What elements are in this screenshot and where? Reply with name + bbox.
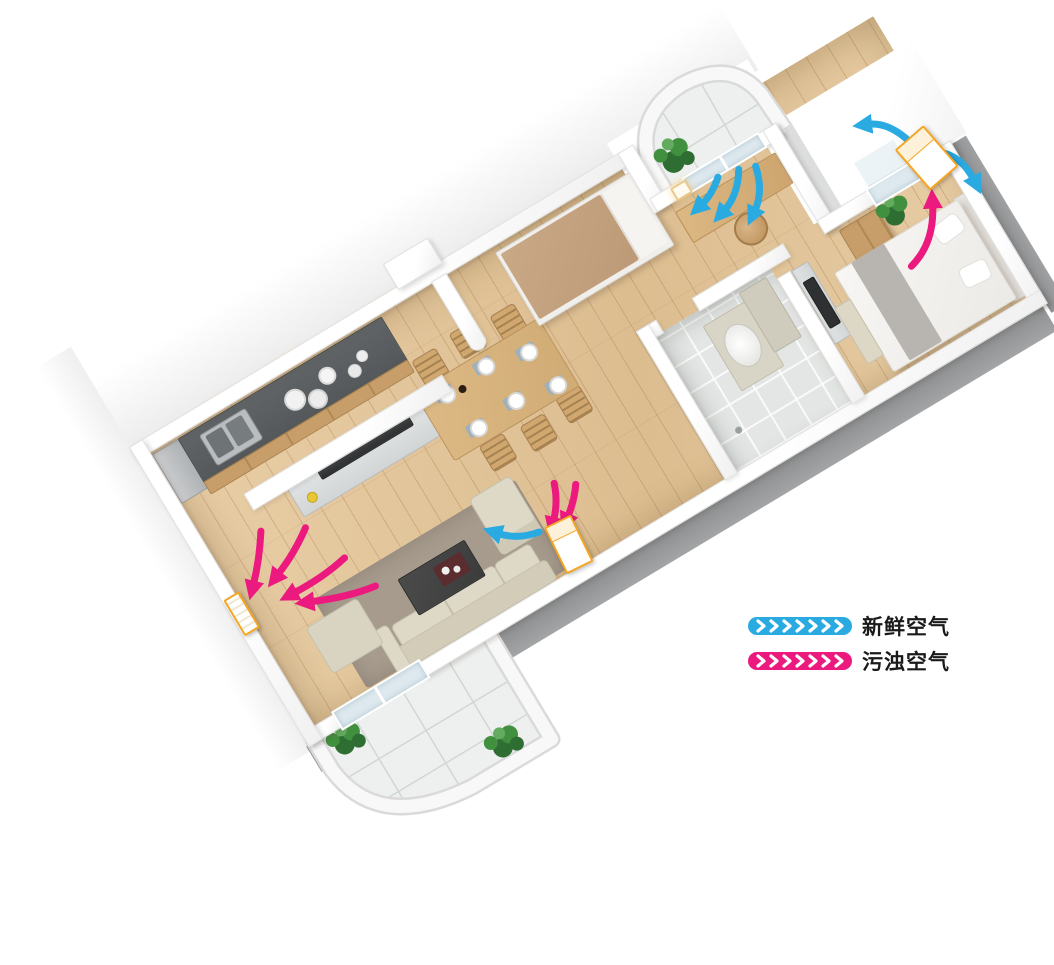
legend-item-fresh-air: 新鲜空气 (748, 614, 950, 638)
fresh-air-arrow (694, 177, 726, 204)
polluted-air-arrow (291, 558, 346, 594)
polluted-air-arrow (264, 528, 319, 575)
polluted-air-arrow (555, 484, 588, 517)
fresh-air-arrow (498, 515, 539, 551)
polluted-air-arrow (890, 205, 954, 267)
legend-label-fresh-air: 新鲜空气 (862, 611, 950, 641)
airflow-arrows-layer (0, 0, 1054, 965)
legend: 新鲜空气 污浊空气 (748, 614, 950, 684)
legend-item-polluted-air: 污浊空气 (748, 649, 950, 673)
polluted-air-arrow-icon (748, 652, 852, 670)
legend-label-polluted-air: 污浊空气 (862, 646, 950, 676)
fresh-air-arrow-icon (748, 617, 852, 635)
scene-canvas: { "legend": { "items": [ { "id": "fresh-… (0, 0, 1054, 894)
